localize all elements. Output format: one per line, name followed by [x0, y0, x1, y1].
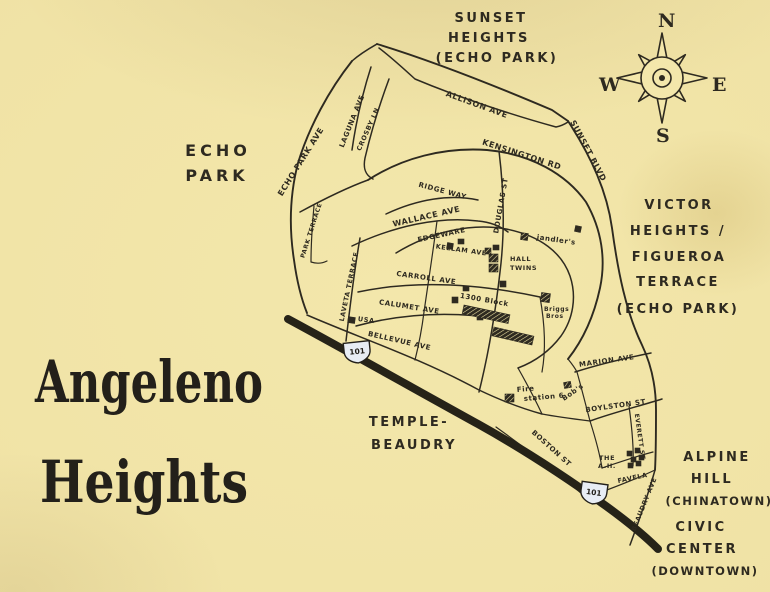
- favela-house-icon: [636, 461, 641, 466]
- landmark-label-briggs-2: Bros: [546, 313, 564, 320]
- neighborhood-label-sunset-heights-1: SUNSET: [455, 11, 528, 26]
- landmark-label-fire-station-2: station 6: [523, 391, 564, 402]
- neighborhood-label-echo-park-2: PARK: [185, 166, 248, 185]
- compass-rose-icon: N E S W: [598, 10, 726, 147]
- shield-101-west-label: 101: [349, 346, 366, 357]
- landmark-label-jandlers: jandler's: [535, 233, 576, 247]
- street-label-everett-st: EVERETT ST: [633, 413, 646, 460]
- bobs-house-icon: [564, 381, 572, 388]
- street-label-boylston-st: BOYLSTON ST: [585, 398, 647, 414]
- fire-station-icon: [505, 394, 514, 402]
- street-label-kensington-rd: KENSINGTON RD: [481, 138, 562, 172]
- house-icon: [493, 245, 499, 250]
- house-icon: [463, 286, 469, 291]
- compass-west-label: W: [598, 74, 621, 96]
- bellevue-boylston-connector: [542, 414, 590, 421]
- street-label-kellam-ave: KELLAM AVE: [435, 242, 487, 257]
- jandlers-house-icon: [520, 233, 528, 241]
- neighborhood-label-temple-beaudry-2: BEAUDRY: [371, 438, 457, 453]
- favela-house-icon: [627, 451, 632, 456]
- landmark-label-usa: USA: [357, 315, 375, 325]
- neighborhood-label-alpine-hill-1: ALPINE: [683, 450, 750, 465]
- neighborhood-label-civic-center-1: CIVIC: [675, 520, 726, 535]
- street-label-echo-park-ave: ECHO PARK AVE: [276, 126, 326, 198]
- neighborhood-label-victor-heights-4: TERRACE: [636, 275, 720, 290]
- house-icon: [500, 281, 506, 287]
- briggs-house-icon: [540, 292, 550, 302]
- landmark-label-hall-twins-2: TWINS: [510, 264, 537, 272]
- victorian-row-1300-block-icon: [492, 327, 534, 345]
- landmark-label-briggs-1: Briggs: [544, 306, 569, 313]
- house-icon: [574, 225, 581, 232]
- neighborhood-label-alpine-hill-2: HILL: [691, 472, 733, 487]
- west-cross-road: [300, 180, 368, 212]
- street-sunset-blvd-east-boundary: [568, 121, 656, 470]
- favela-house-icon: [631, 457, 636, 462]
- favela-house-icon: [628, 463, 633, 468]
- map-title: Angeleno Heights: [34, 348, 263, 516]
- neighborhood-label-victor-heights-5: (ECHO PARK): [617, 302, 740, 317]
- landmark-label-hall-twins-1: HALL: [510, 255, 531, 263]
- landmark-label-favela-2: A.H.: [598, 462, 616, 470]
- neighborhood-label-victor-heights-2: HEIGHTS /: [630, 224, 726, 239]
- neighborhood-label-sunset-heights-2: HEIGHTS: [448, 31, 530, 46]
- freeway-101: [288, 319, 658, 549]
- map-title-line2: Heights: [40, 448, 248, 516]
- compass-south-label: S: [656, 125, 670, 147]
- compass-north-label: N: [658, 10, 675, 32]
- street-label-sunset-blvd: SUNSET BLVD: [568, 119, 608, 183]
- hall-twins-house-icon: [489, 264, 498, 272]
- street-label-bellevue-ave: BELLEVUE AVE: [367, 330, 432, 352]
- street-label-carroll-ave: CARROLL AVE: [396, 270, 457, 286]
- ring-to-marion-connector: [568, 359, 577, 372]
- landmark-label-favela-1: THE: [599, 454, 615, 462]
- neighborhood-label-victor-heights-1: VICTOR: [644, 198, 713, 213]
- neighborhood-label-civic-center-2: CENTER: [666, 542, 738, 557]
- street-carroll-ave: [358, 285, 540, 297]
- neighborhood-label-echo-park-1: ECHO: [185, 141, 251, 160]
- neighborhood-label-alpine-hill-3: (CHINATOWN): [666, 494, 770, 508]
- map-canvas: 101 101 ALLISON AVE SUNSET BLVD E: [0, 0, 770, 592]
- compass-east-label: E: [712, 74, 726, 96]
- street-label-beaudry-ave: BEAUDRY AVE: [630, 476, 659, 532]
- landmark-label-favela-3: FAVELA: [617, 471, 649, 485]
- street-label-marion-ave: MARION AVE: [579, 353, 635, 369]
- neighborhood-label-temple-beaudry-1: TEMPLE-: [369, 415, 449, 430]
- street-label-allison-ave: ALLISON AVE: [445, 89, 509, 120]
- map-title-line1: Angeleno: [34, 348, 263, 416]
- street-label-calumet-ave: CALUMET AVE: [378, 298, 440, 315]
- usa-house-icon: [348, 317, 356, 324]
- hand-drawn-map: 101 101 ALLISON AVE SUNSET BLVD E: [0, 0, 770, 592]
- landmark-label-fire-station-1: Fire: [516, 384, 534, 394]
- neighborhood-label-sunset-heights-3: (ECHO PARK): [436, 51, 559, 66]
- street-label-wallace-ave: WALLACE AVE: [392, 204, 461, 228]
- street-label-douglas-st: DOUGLAS ST: [492, 177, 510, 234]
- victorian-row-1300-block-icon: [462, 305, 510, 324]
- street-echo-park-ave-west-boundary: [291, 61, 352, 313]
- neighborhood-label-civic-center-3: (DOWNTOWN): [651, 564, 758, 578]
- house-icon: [458, 239, 464, 244]
- corner-connector: [352, 44, 377, 61]
- neighborhood-label-victor-heights-3: FIGUEROA: [632, 250, 727, 265]
- house-icon: [452, 297, 458, 303]
- hall-twins-house-icon: [489, 254, 498, 262]
